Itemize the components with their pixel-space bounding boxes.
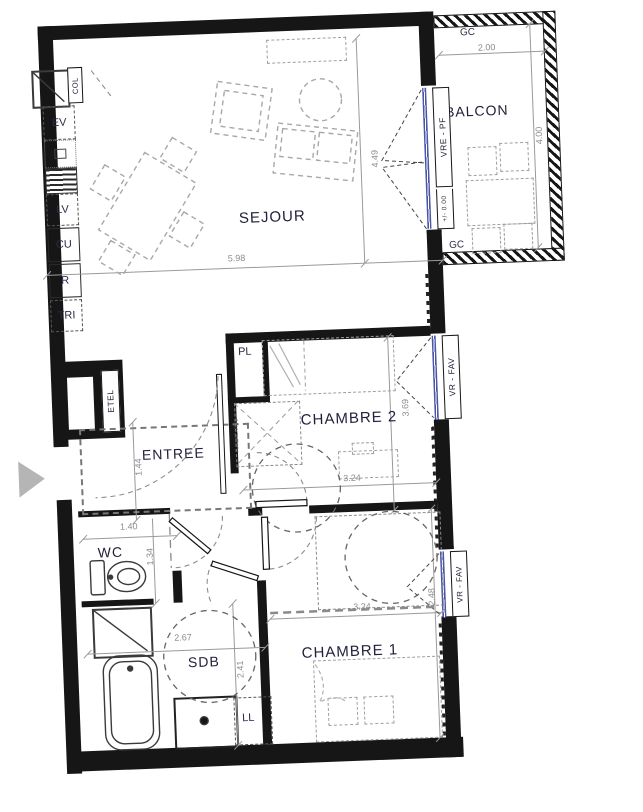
dim-sejour-h: 4.49	[369, 141, 380, 177]
sejour-furniture	[55, 76, 364, 302]
chambre2-door-leaf	[256, 500, 307, 508]
chambre1-door-arc	[267, 516, 318, 569]
col-door-swing	[91, 70, 112, 99]
washbasin-drain	[200, 717, 208, 725]
sdb-door-leaf	[211, 561, 258, 580]
dim-wc-h: 1.34	[144, 539, 155, 575]
dim-balcon-w: 2.00	[468, 42, 504, 53]
shaft-diagonal-kitchen	[33, 72, 64, 103]
bathtub-inner	[109, 661, 154, 745]
dim-chambre1-h: 2.48	[426, 579, 437, 615]
toilet-bowl-inner	[117, 568, 140, 585]
armchair	[211, 81, 273, 140]
dim-sdb-w: 2.67	[165, 632, 201, 643]
room-label-sdb: SDB	[188, 653, 220, 670]
round-table	[299, 78, 343, 122]
room-label-entree: ENTREE	[142, 445, 205, 463]
plan-linework	[0, 0, 643, 812]
dim-sejour-w: 5.98	[218, 252, 254, 263]
shaft-diagonal-sdb	[94, 609, 148, 653]
dim-entree-h: 1.44	[133, 449, 144, 485]
sofa	[273, 123, 358, 181]
dim-balcon-h: 4.00	[533, 117, 544, 153]
dim-sdb-h: 2.41	[235, 651, 246, 687]
door-leaves	[169, 500, 310, 584]
entry-door-arc	[91, 376, 222, 498]
entry-arrow	[18, 461, 45, 498]
room-label-wc: WC	[97, 544, 123, 561]
chambre2-door-arc	[254, 451, 307, 504]
dim-chambre1-w: 3.24	[344, 601, 380, 612]
floor-plan: GC GC BALCON VRE - PF +/- 0.00 VR - FAV …	[0, 0, 643, 812]
fixtures	[33, 67, 209, 752]
toilet-tank	[90, 560, 105, 595]
placard-label: PL	[238, 346, 252, 359]
dining-table-set	[61, 115, 234, 298]
dim-chambre2-h: 3.69	[400, 390, 411, 426]
room-label-sejour: SEJOUR	[239, 207, 306, 227]
sdb-door-arc	[206, 564, 212, 601]
toilet-dot	[109, 575, 113, 579]
ll-label: LL	[242, 712, 255, 724]
dim-chambre2-w: 3.24	[334, 472, 370, 483]
dim-wc-w: 1.40	[111, 521, 147, 532]
chambre1-door-leaf	[261, 517, 269, 569]
bathtub-tap	[128, 666, 133, 671]
